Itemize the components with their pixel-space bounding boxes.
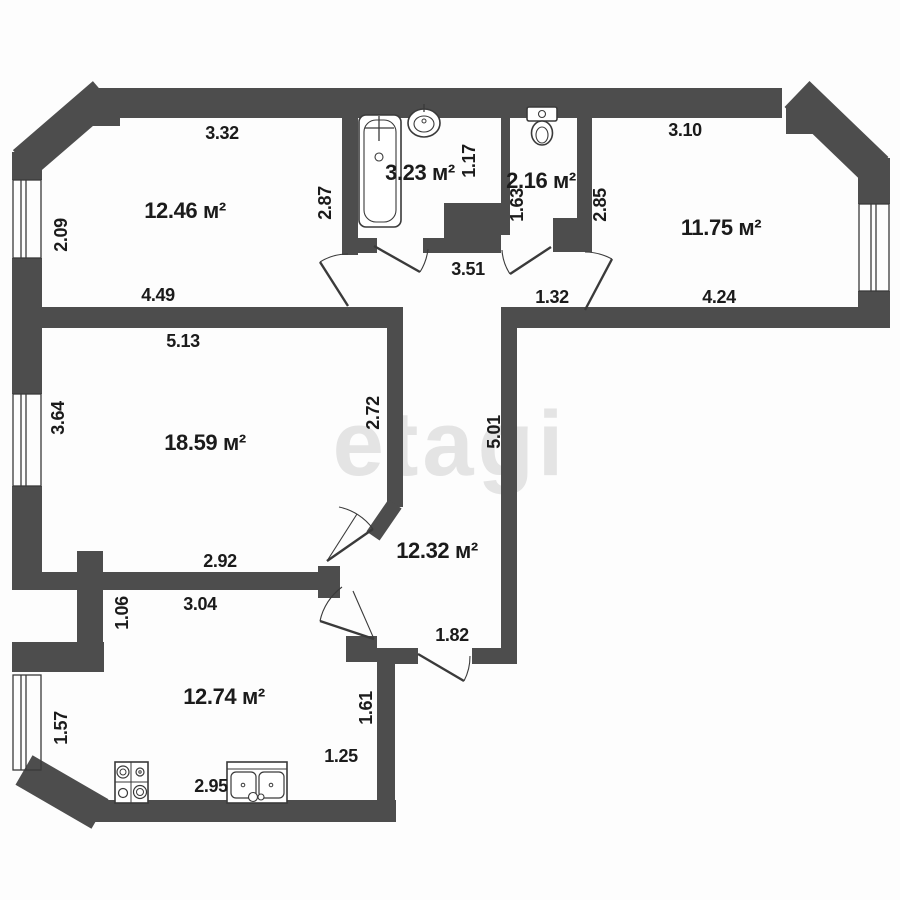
wall-mid-left [12,307,403,328]
toilet-bowl-inner [536,127,548,143]
wall-bath-jamb-left [358,238,377,253]
dim-2-85: 2.85 [590,188,610,222]
door-leaf [510,247,551,274]
stove-burner [119,789,128,798]
door-bathroom [374,246,428,272]
wall-kitchen-top [26,572,330,590]
dim-2-87: 2.87 [315,186,335,220]
wall-kitchen-door-jamb [346,636,377,662]
dim-3-32: 3.32 [205,123,239,143]
window-frame [13,675,41,770]
window-room-top-left [13,180,41,258]
window-kitchen [13,675,41,770]
door-arc [502,250,510,274]
room-area-hallway: 12.32 м² [396,538,478,563]
wall-top [92,88,782,118]
door-wc [502,247,551,274]
door-fold-line [327,514,357,561]
wall-living-right [387,328,403,507]
door-leaf [418,654,464,681]
wall-kitchen-right [377,648,395,822]
room-area-living: 18.59 м² [164,430,246,455]
dim-2-95: 2.95 [194,776,228,796]
wall-wc-block [553,218,592,252]
stove-icon [115,762,148,803]
dim-1-25: 1.25 [324,746,358,766]
wall-bath-left [342,116,358,255]
room-area-top-right: 11.75 м² [681,215,761,240]
wall-pillar [77,551,103,672]
door-leaf [320,262,348,306]
wall-bath-jamb-right [423,238,444,253]
dim-1-06: 1.06 [112,596,132,630]
dim-3-10: 3.10 [668,120,702,140]
door-room-top-right [585,252,612,310]
wall-chamfer-top-left [24,94,104,163]
dim-2-72: 2.72 [363,396,383,430]
dim-2-09: 2.09 [51,218,71,252]
stove-burner [139,771,141,773]
stove-burner [120,769,126,775]
door-entrance [418,654,470,681]
bathtub-drain [375,153,383,161]
door-arc [320,254,348,262]
dim-5-13: 5.13 [166,331,200,351]
window-living-room [13,394,41,486]
door-arc [585,252,612,259]
window-frame [859,204,889,291]
window-room-top-right [859,204,889,291]
room-area-top-left: 12.46 м² [144,198,226,223]
dim-1-82: 1.82 [435,625,469,645]
window-frame [13,394,41,486]
wall-funnel-diagonal [373,504,395,536]
dim-1-57: 1.57 [51,711,71,745]
door-living-room [327,507,373,561]
basin-inner [414,116,434,132]
stove-burner [137,789,144,796]
door-arc [339,507,373,529]
dim-3-64: 3.64 [48,401,68,435]
room-area-kitchen: 12.74 м² [183,684,265,709]
dim-1-63: 1.63 [507,188,527,222]
sink-drain-right [269,783,273,787]
dim-3-51: 3.51 [451,259,485,279]
door-leaf [585,259,612,310]
dim-2-92: 2.92 [203,551,237,571]
door-arc [464,656,470,681]
wall-shaft [444,203,501,253]
dim-3-04: 3.04 [183,594,217,614]
wall-hallway-right [501,318,517,664]
dim-4-24: 4.24 [702,287,736,307]
kitchen-sink-icon [227,762,287,803]
wall-mid-right [501,307,888,328]
door-room-top-left [320,254,348,306]
dim-1-17: 1.17 [459,144,479,178]
wall-entry-left [395,648,418,664]
basin-drain [422,119,426,123]
dim-1-32: 1.32 [535,287,569,307]
room-area-bathroom: 3.23 м² [385,160,455,185]
toilet-button [539,111,546,118]
floor-plan-canvas: etagi [0,0,900,900]
sink-drain-left [241,783,245,787]
toilet-icon [527,107,557,145]
wall-chamfer-bottom-left [24,770,100,814]
sink-faucet [249,793,258,802]
door-leaf [374,246,420,272]
door-leaf [327,529,373,561]
dim-1-61: 1.61 [356,691,376,725]
dim-5-01: 5.01 [484,415,504,449]
dim-4-49: 4.49 [141,285,175,305]
wall-right-2 [858,291,890,328]
floor-plan: etagi [0,0,900,900]
window-frame [13,180,41,258]
sink-faucet [258,794,264,800]
